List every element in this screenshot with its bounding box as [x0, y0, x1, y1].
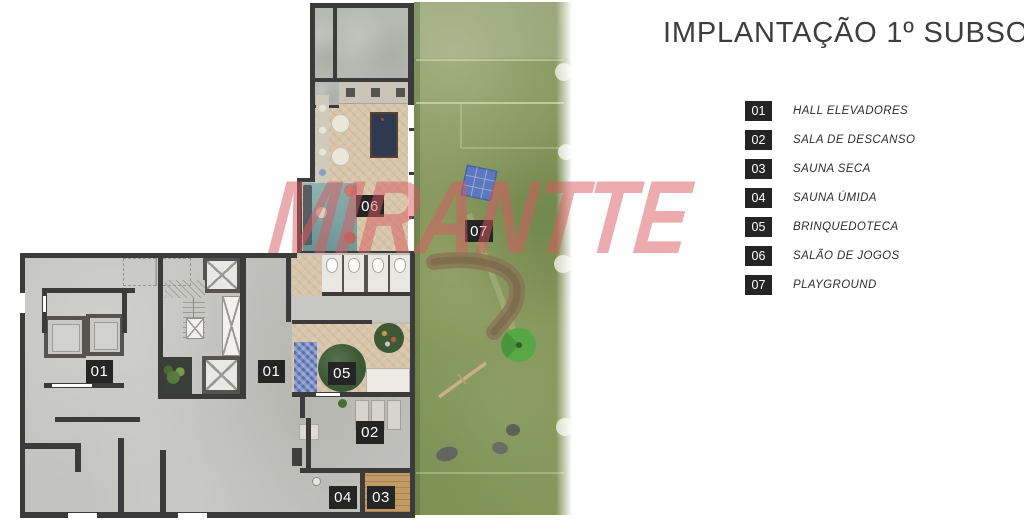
wall — [118, 438, 124, 512]
elevator — [202, 356, 241, 394]
marker-hall-center: 01 — [258, 360, 285, 383]
legend-number: 07 — [745, 275, 772, 295]
parking-space-outline — [123, 258, 191, 286]
window-mullion — [409, 216, 414, 219]
plant — [338, 399, 347, 408]
marker-jogos: 06 — [356, 195, 384, 217]
wall — [410, 253, 415, 518]
legend-label: PLAYGROUND — [793, 279, 877, 291]
planter — [158, 357, 192, 394]
window-mullion — [409, 172, 414, 175]
craft-table — [366, 368, 410, 394]
legend-label: BRINQUEDOTECA — [793, 221, 899, 233]
garden-playground — [414, 2, 572, 515]
door-gap — [52, 384, 92, 387]
wall — [75, 443, 81, 472]
rock — [435, 444, 460, 463]
door-gap — [178, 513, 207, 518]
legend-label: SALA DE DESCANSO — [793, 134, 915, 146]
wall — [310, 3, 414, 8]
elevator-shaft — [186, 318, 204, 339]
wall — [20, 443, 75, 449]
service-corridor — [222, 296, 241, 356]
floor-plan-page: 01 01 05 02 04 03 06 07 MIRANTTE IMPLANT… — [0, 0, 1024, 524]
round-table — [331, 114, 350, 133]
legend-label: SALÃO DE JOGOS — [793, 250, 900, 262]
elevator-box — [86, 314, 124, 356]
legend-number: 05 — [745, 217, 772, 237]
rock — [506, 424, 520, 436]
marker-hall-left: 01 — [86, 360, 113, 383]
marker-sauna-seca: 03 — [367, 486, 395, 509]
elevator-box — [44, 316, 86, 358]
pool-table — [370, 112, 398, 158]
wall — [408, 3, 414, 105]
wall — [297, 178, 302, 255]
shower-icon — [312, 477, 321, 486]
legend-number: 06 — [745, 246, 772, 266]
bar-stool — [346, 88, 355, 97]
sofa — [303, 185, 312, 245]
legend-item: 03 SAUNA SECA — [745, 159, 915, 179]
toilet-stall — [342, 255, 364, 292]
wall — [300, 468, 410, 473]
marker-sauna-umida: 04 — [329, 486, 357, 509]
wall — [286, 255, 291, 322]
door-gap — [68, 513, 97, 518]
legend-number: 01 — [745, 101, 772, 121]
bar-stool — [371, 88, 380, 97]
wall — [240, 253, 246, 398]
window-mullion — [409, 128, 414, 131]
rock — [491, 441, 509, 456]
hall-floor — [292, 255, 322, 296]
toilet-icon — [348, 258, 360, 273]
toilet-icon — [394, 258, 406, 273]
door-gap — [20, 293, 25, 313]
legend-label: SAUNA ÚMIDA — [793, 192, 877, 204]
wall — [292, 392, 410, 397]
picnic-blanket — [461, 165, 497, 201]
garden-detail-overlay — [414, 2, 572, 515]
legend-label: SAUNA SECA — [793, 163, 871, 175]
window-strip — [409, 105, 414, 251]
wall — [360, 468, 365, 518]
wall — [306, 418, 311, 470]
legend-number: 02 — [745, 130, 772, 150]
legend-item: 04 SAUNA ÚMIDA — [745, 188, 915, 208]
storage-box — [292, 448, 302, 466]
bar-stool — [396, 88, 405, 97]
wall — [292, 320, 372, 324]
corridor — [292, 296, 410, 322]
buffet-counter — [316, 95, 329, 183]
ball-pit — [294, 342, 317, 392]
sage-top-band — [414, 2, 572, 58]
toilet-stall — [322, 255, 342, 292]
marker-brinquedoteca: 05 — [328, 362, 356, 385]
marker-playground: 07 — [465, 220, 493, 242]
marker-descanso: 02 — [356, 421, 384, 444]
wall — [310, 3, 315, 182]
legend-item: 01 HALL ELEVADORES — [745, 101, 915, 121]
wall — [158, 253, 163, 398]
legend-label: HALL ELEVADORES — [793, 105, 908, 117]
elevator — [203, 257, 241, 293]
toilet-icon — [372, 258, 384, 273]
service-room — [337, 8, 408, 78]
legend-item: 06 SALÃO DE JOGOS — [745, 246, 915, 266]
technical-room — [315, 8, 333, 78]
pouf — [344, 232, 356, 244]
legend-item: 02 SALA DE DESCANSO — [745, 130, 915, 150]
door-gap — [316, 393, 340, 396]
pouf — [316, 207, 327, 218]
play-tree-trunk — [516, 342, 522, 348]
legend-item: 05 BRINQUEDOTECA — [745, 217, 915, 237]
wall — [322, 292, 410, 296]
toilet-stall — [364, 255, 388, 292]
wall — [55, 417, 140, 422]
toilet-stall — [388, 255, 410, 292]
round-table — [331, 147, 350, 166]
door-gap — [43, 296, 46, 312]
legend: 01 HALL ELEVADORES 02 SALA DE DESCANSO 0… — [745, 101, 915, 304]
dirt-path-inner — [434, 260, 517, 332]
legend-number: 04 — [745, 188, 772, 208]
restrooms — [322, 255, 410, 292]
wall — [300, 394, 305, 418]
legend-item: 07 PLAYGROUND — [745, 275, 915, 295]
wall — [160, 450, 166, 512]
legend-number: 03 — [745, 159, 772, 179]
wall — [333, 6, 337, 80]
lounger — [387, 400, 401, 430]
garden-right-fade — [556, 2, 572, 515]
page-title: IMPLANTAÇÃO 1º SUBSOLO — [663, 17, 1023, 50]
toilet-icon — [326, 258, 338, 273]
play-rug-small — [374, 323, 404, 353]
wall — [158, 394, 246, 399]
wall — [122, 288, 127, 333]
